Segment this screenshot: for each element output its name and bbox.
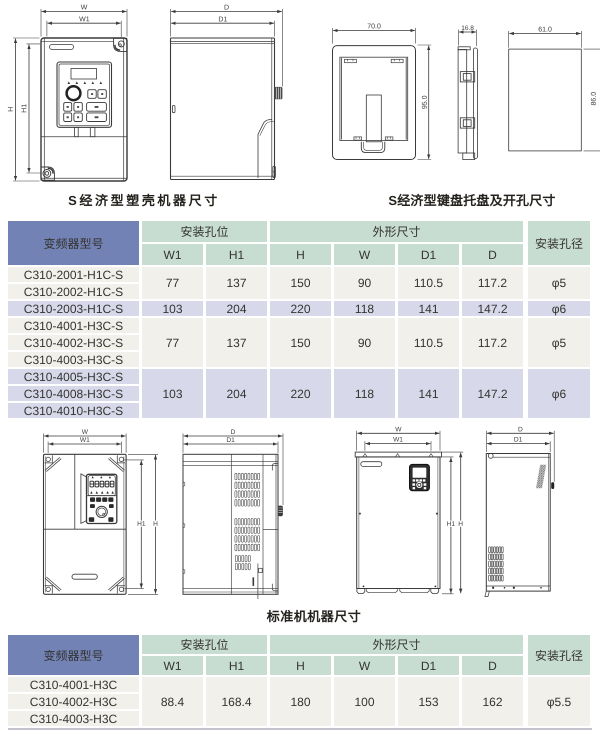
svg-text:D1: D1 [514, 437, 523, 444]
svg-text:W: W [82, 429, 89, 436]
svg-text:H: H [458, 521, 463, 528]
svg-text:16.8: 16.8 [461, 25, 474, 32]
svg-text:86.0: 86.0 [591, 92, 598, 106]
svg-text:W: W [395, 426, 402, 433]
svg-text:W1: W1 [80, 437, 90, 444]
svg-text:W1: W1 [79, 16, 90, 23]
svg-text:D: D [224, 4, 229, 11]
svg-text:95.0: 95.0 [422, 95, 429, 109]
svg-text:W1: W1 [393, 436, 403, 443]
svg-text:H1: H1 [137, 521, 146, 528]
svg-text:61.0: 61.0 [538, 27, 552, 34]
svg-text:H1: H1 [447, 521, 456, 528]
svg-text:H: H [153, 521, 158, 528]
svg-text:D: D [518, 426, 523, 433]
svg-text:H: H [8, 107, 15, 112]
svg-text:H1: H1 [21, 104, 28, 113]
svg-text:D: D [231, 429, 236, 436]
svg-text:D1: D1 [226, 437, 235, 444]
svg-text:W: W [81, 4, 88, 11]
svg-text:70.0: 70.0 [367, 23, 381, 30]
svg-text:D1: D1 [218, 16, 227, 23]
